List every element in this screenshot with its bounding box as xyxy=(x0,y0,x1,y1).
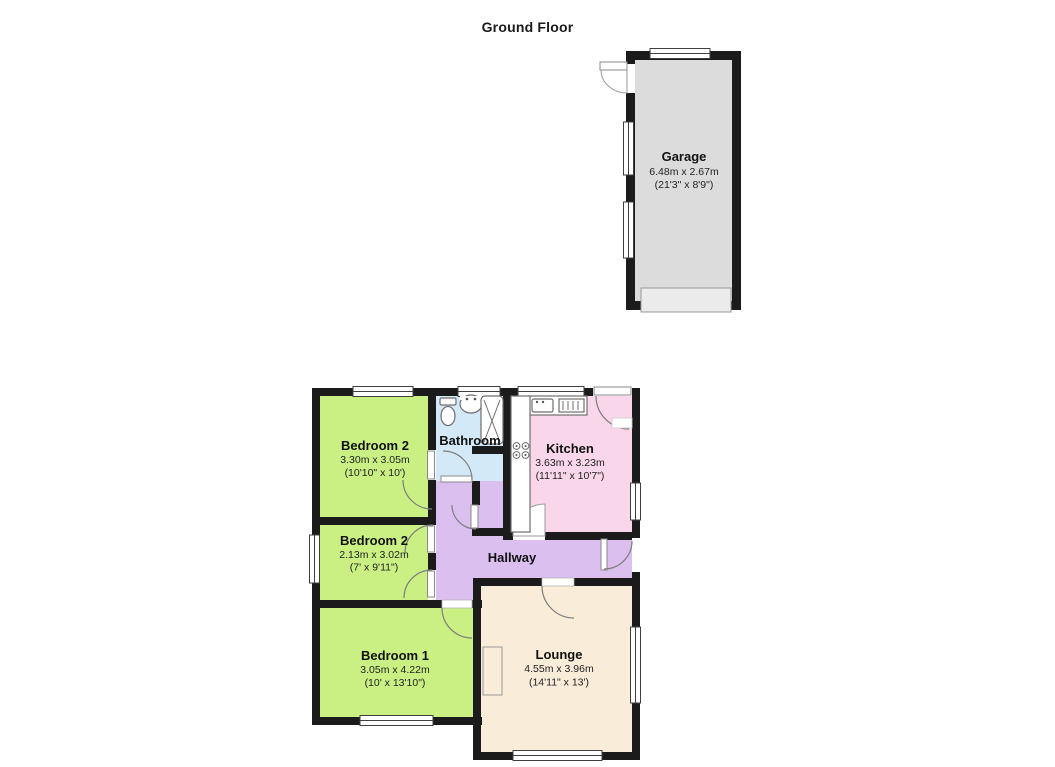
hob-icon xyxy=(516,445,518,447)
toilet-icon xyxy=(441,407,455,426)
lounge-label: Lounge xyxy=(536,647,583,662)
bedroom1-label: Bedroom 1 xyxy=(361,648,429,663)
bedroom2a-label: Bedroom 2 xyxy=(341,438,409,453)
door-opening xyxy=(632,538,640,572)
bedroom2b-dims-imperial: (7' x 9'11") xyxy=(350,562,398,574)
hallway-label: Hallway xyxy=(488,550,537,565)
hallway-lower xyxy=(436,578,473,600)
kitchen-dims-imperial: (11'11" x 10'7") xyxy=(536,470,605,482)
kitchen-counter xyxy=(511,396,530,532)
door-leaf xyxy=(471,505,478,528)
wall xyxy=(503,396,511,532)
wall xyxy=(428,553,436,570)
garage-door-swing xyxy=(601,70,627,93)
wall xyxy=(312,517,436,525)
door-leaf xyxy=(428,526,435,552)
door-leaf xyxy=(600,62,627,70)
garage-dims-imperial: (21'3" x 8'9") xyxy=(655,179,714,191)
door-leaf xyxy=(594,387,631,395)
wall xyxy=(545,532,632,540)
floorplan-canvas: Ground Floor Garage 6.48m x 2.67m (21'3"… xyxy=(0,0,1055,767)
door-opening xyxy=(442,600,472,608)
basin-icon xyxy=(460,396,482,400)
wall xyxy=(428,480,436,517)
hob-icon xyxy=(516,454,518,456)
front-door-leaf xyxy=(601,539,607,570)
lounge-dims-imperial: (14'11" x 13') xyxy=(529,677,589,689)
bedroom2b-label: Bedroom 2 xyxy=(340,533,408,548)
bedroom1-dims-metric: 3.05m x 4.22m xyxy=(360,664,430,676)
garage-vehicle-door xyxy=(641,288,731,312)
garage-dims-metric: 6.48m x 2.67m xyxy=(649,166,719,178)
garage-block: Garage 6.48m x 2.67m (21'3" x 8'9") xyxy=(600,49,741,313)
door-opening xyxy=(542,578,574,586)
kitchen-unit xyxy=(612,418,632,428)
wall xyxy=(472,481,480,505)
wall xyxy=(473,578,481,760)
tap-icon xyxy=(536,401,538,403)
hob-icon xyxy=(525,445,527,447)
tap-icon xyxy=(542,401,544,403)
fireplace xyxy=(483,647,502,695)
tap-icon xyxy=(474,398,477,401)
wall xyxy=(428,396,436,450)
wall xyxy=(312,600,442,608)
bedroom2b-dims-metric: 2.13m x 3.02m xyxy=(339,549,409,561)
garage-label: Garage xyxy=(662,149,707,164)
floorplan-drawing: Garage 6.48m x 2.67m (21'3" x 8'9") xyxy=(0,0,1055,767)
hob-icon xyxy=(525,454,527,456)
bedroom2a-dims-metric: 3.30m x 3.05m xyxy=(340,454,410,466)
door-leaf xyxy=(428,571,435,597)
wall xyxy=(503,532,513,540)
door-leaf xyxy=(428,451,435,479)
bathroom-label: Bathroom xyxy=(439,433,500,448)
tap-icon xyxy=(466,398,469,401)
bedroom2a-dims-imperial: (10'10" x 10') xyxy=(345,467,406,479)
bedroom1-dims-imperial: (10' x 13'10") xyxy=(365,677,426,689)
door-leaf xyxy=(441,476,472,482)
toilet-icon xyxy=(440,398,456,405)
wall xyxy=(473,578,542,586)
wall xyxy=(574,578,632,586)
kitchen-dims-metric: 3.63m x 3.23m xyxy=(535,457,605,469)
lounge-dims-metric: 4.55m x 3.96m xyxy=(524,663,594,675)
kitchen-label: Kitchen xyxy=(546,441,594,456)
